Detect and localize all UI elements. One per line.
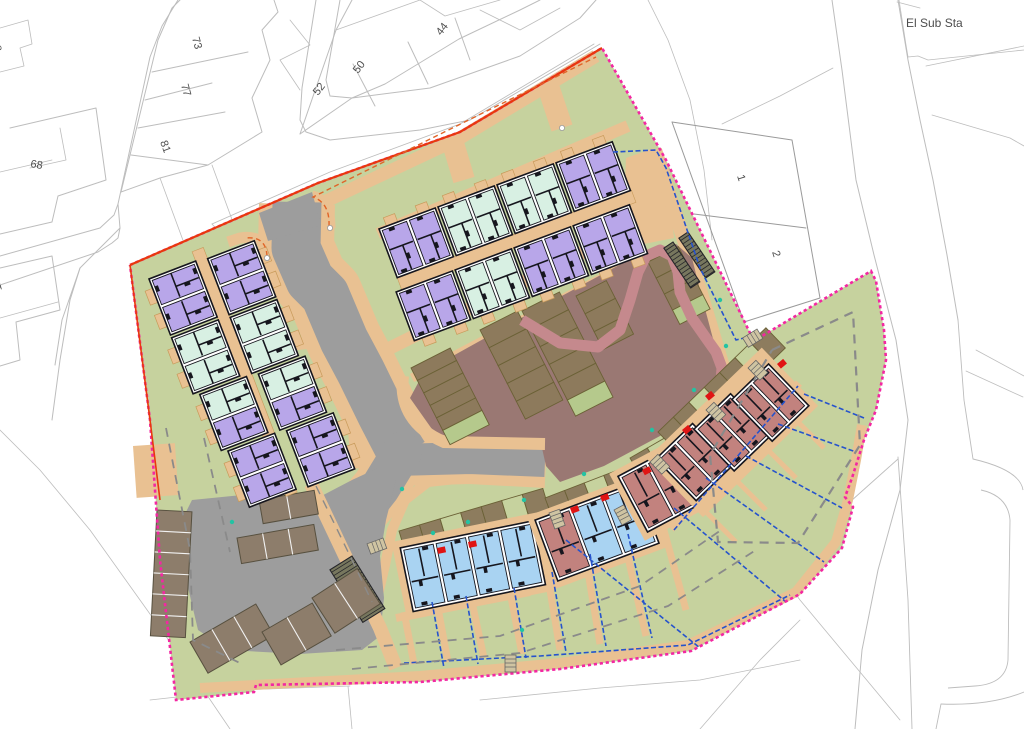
- svg-text:68: 68: [29, 158, 43, 172]
- svg-text:El Sub Sta: El Sub Sta: [906, 16, 963, 30]
